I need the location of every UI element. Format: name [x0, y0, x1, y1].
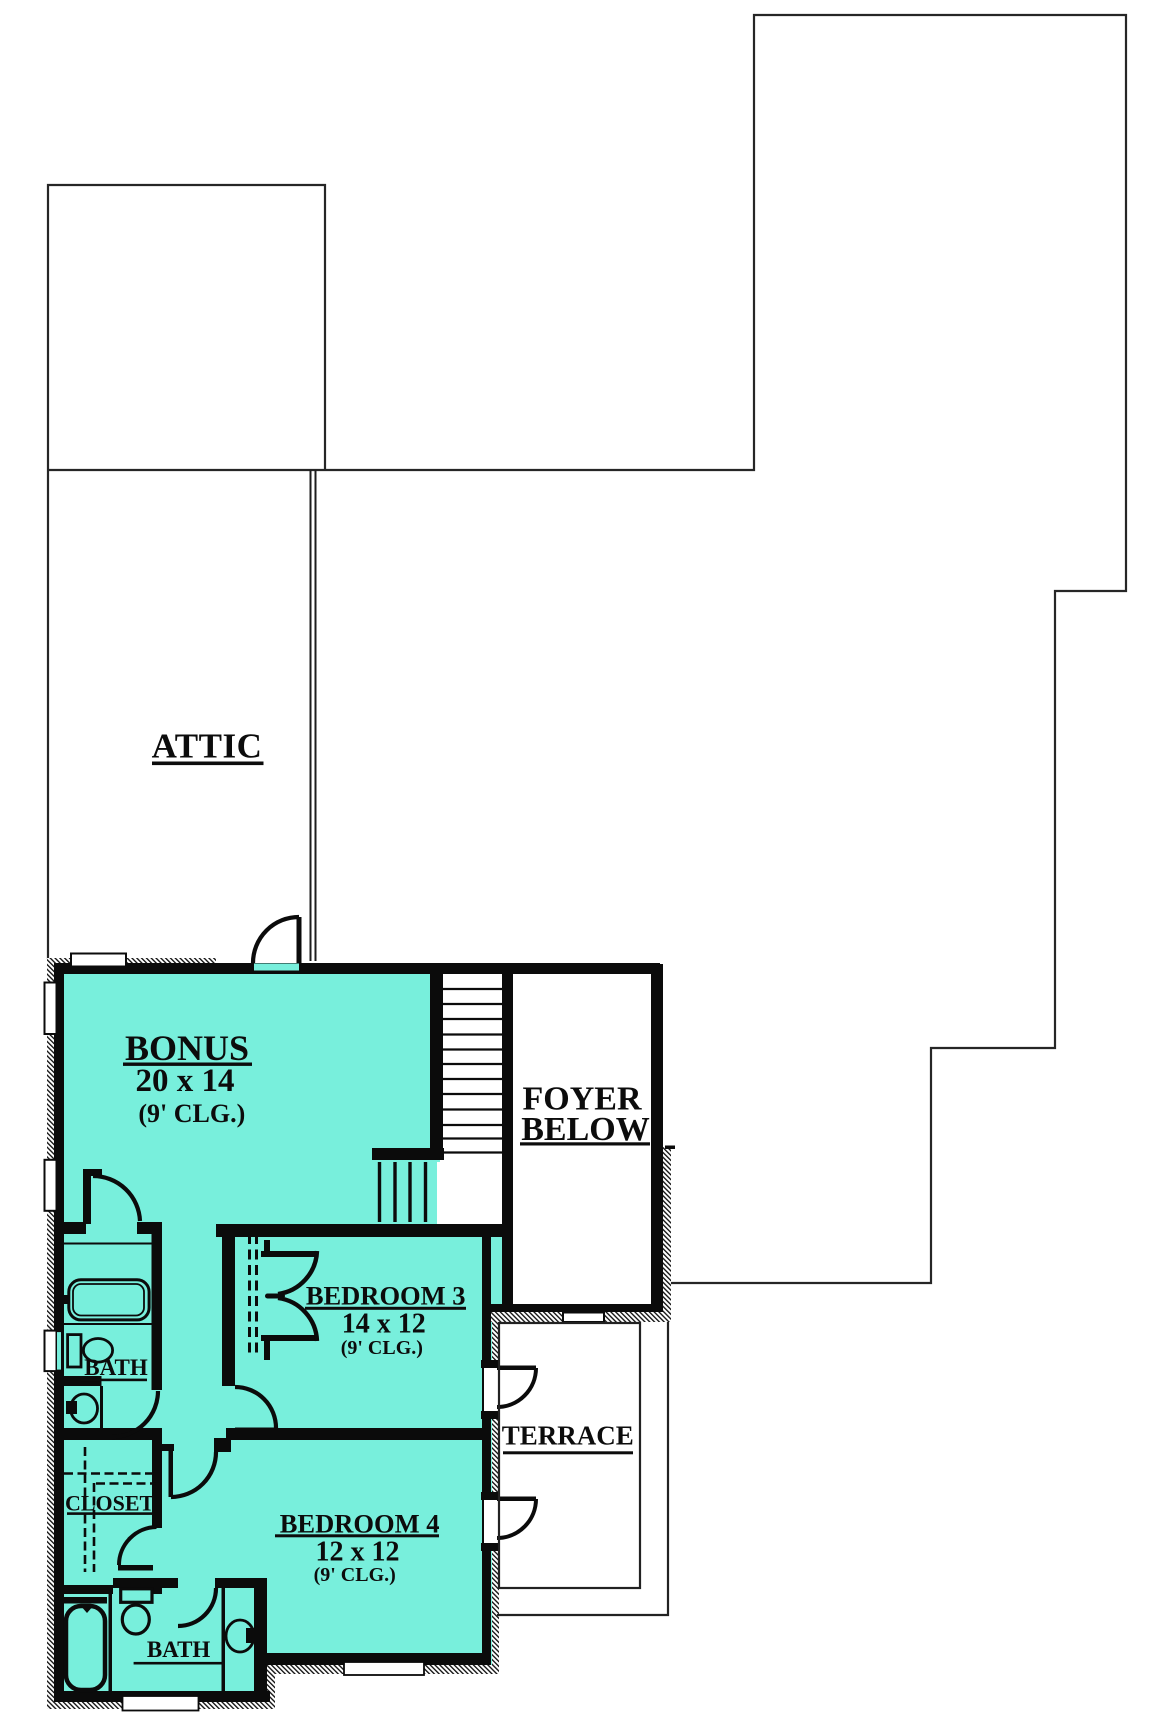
- svg-text:20 x 14: 20 x 14: [136, 1063, 235, 1099]
- svg-text:BEDROOM 3: BEDROOM 3: [306, 1281, 466, 1311]
- svg-text:CLOSET: CLOSET: [65, 1491, 155, 1516]
- svg-text:(9' CLG.): (9' CLG.): [314, 1564, 396, 1586]
- svg-text:14 x 12: 14 x 12: [342, 1309, 426, 1340]
- svg-text:BONUS: BONUS: [125, 1028, 249, 1068]
- svg-text:ATTIC: ATTIC: [152, 727, 263, 766]
- svg-text:(9' CLG.): (9' CLG.): [341, 1337, 423, 1359]
- svg-text:BATH: BATH: [84, 1355, 148, 1380]
- svg-text:BELOW: BELOW: [521, 1111, 649, 1148]
- svg-text:12 x 12: 12 x 12: [316, 1537, 400, 1568]
- svg-text:BEDROOM 4: BEDROOM 4: [280, 1508, 440, 1538]
- svg-text:TERRACE: TERRACE: [502, 1421, 634, 1451]
- svg-text:(9' CLG.): (9' CLG.): [138, 1099, 245, 1128]
- svg-text:BATH: BATH: [147, 1637, 211, 1662]
